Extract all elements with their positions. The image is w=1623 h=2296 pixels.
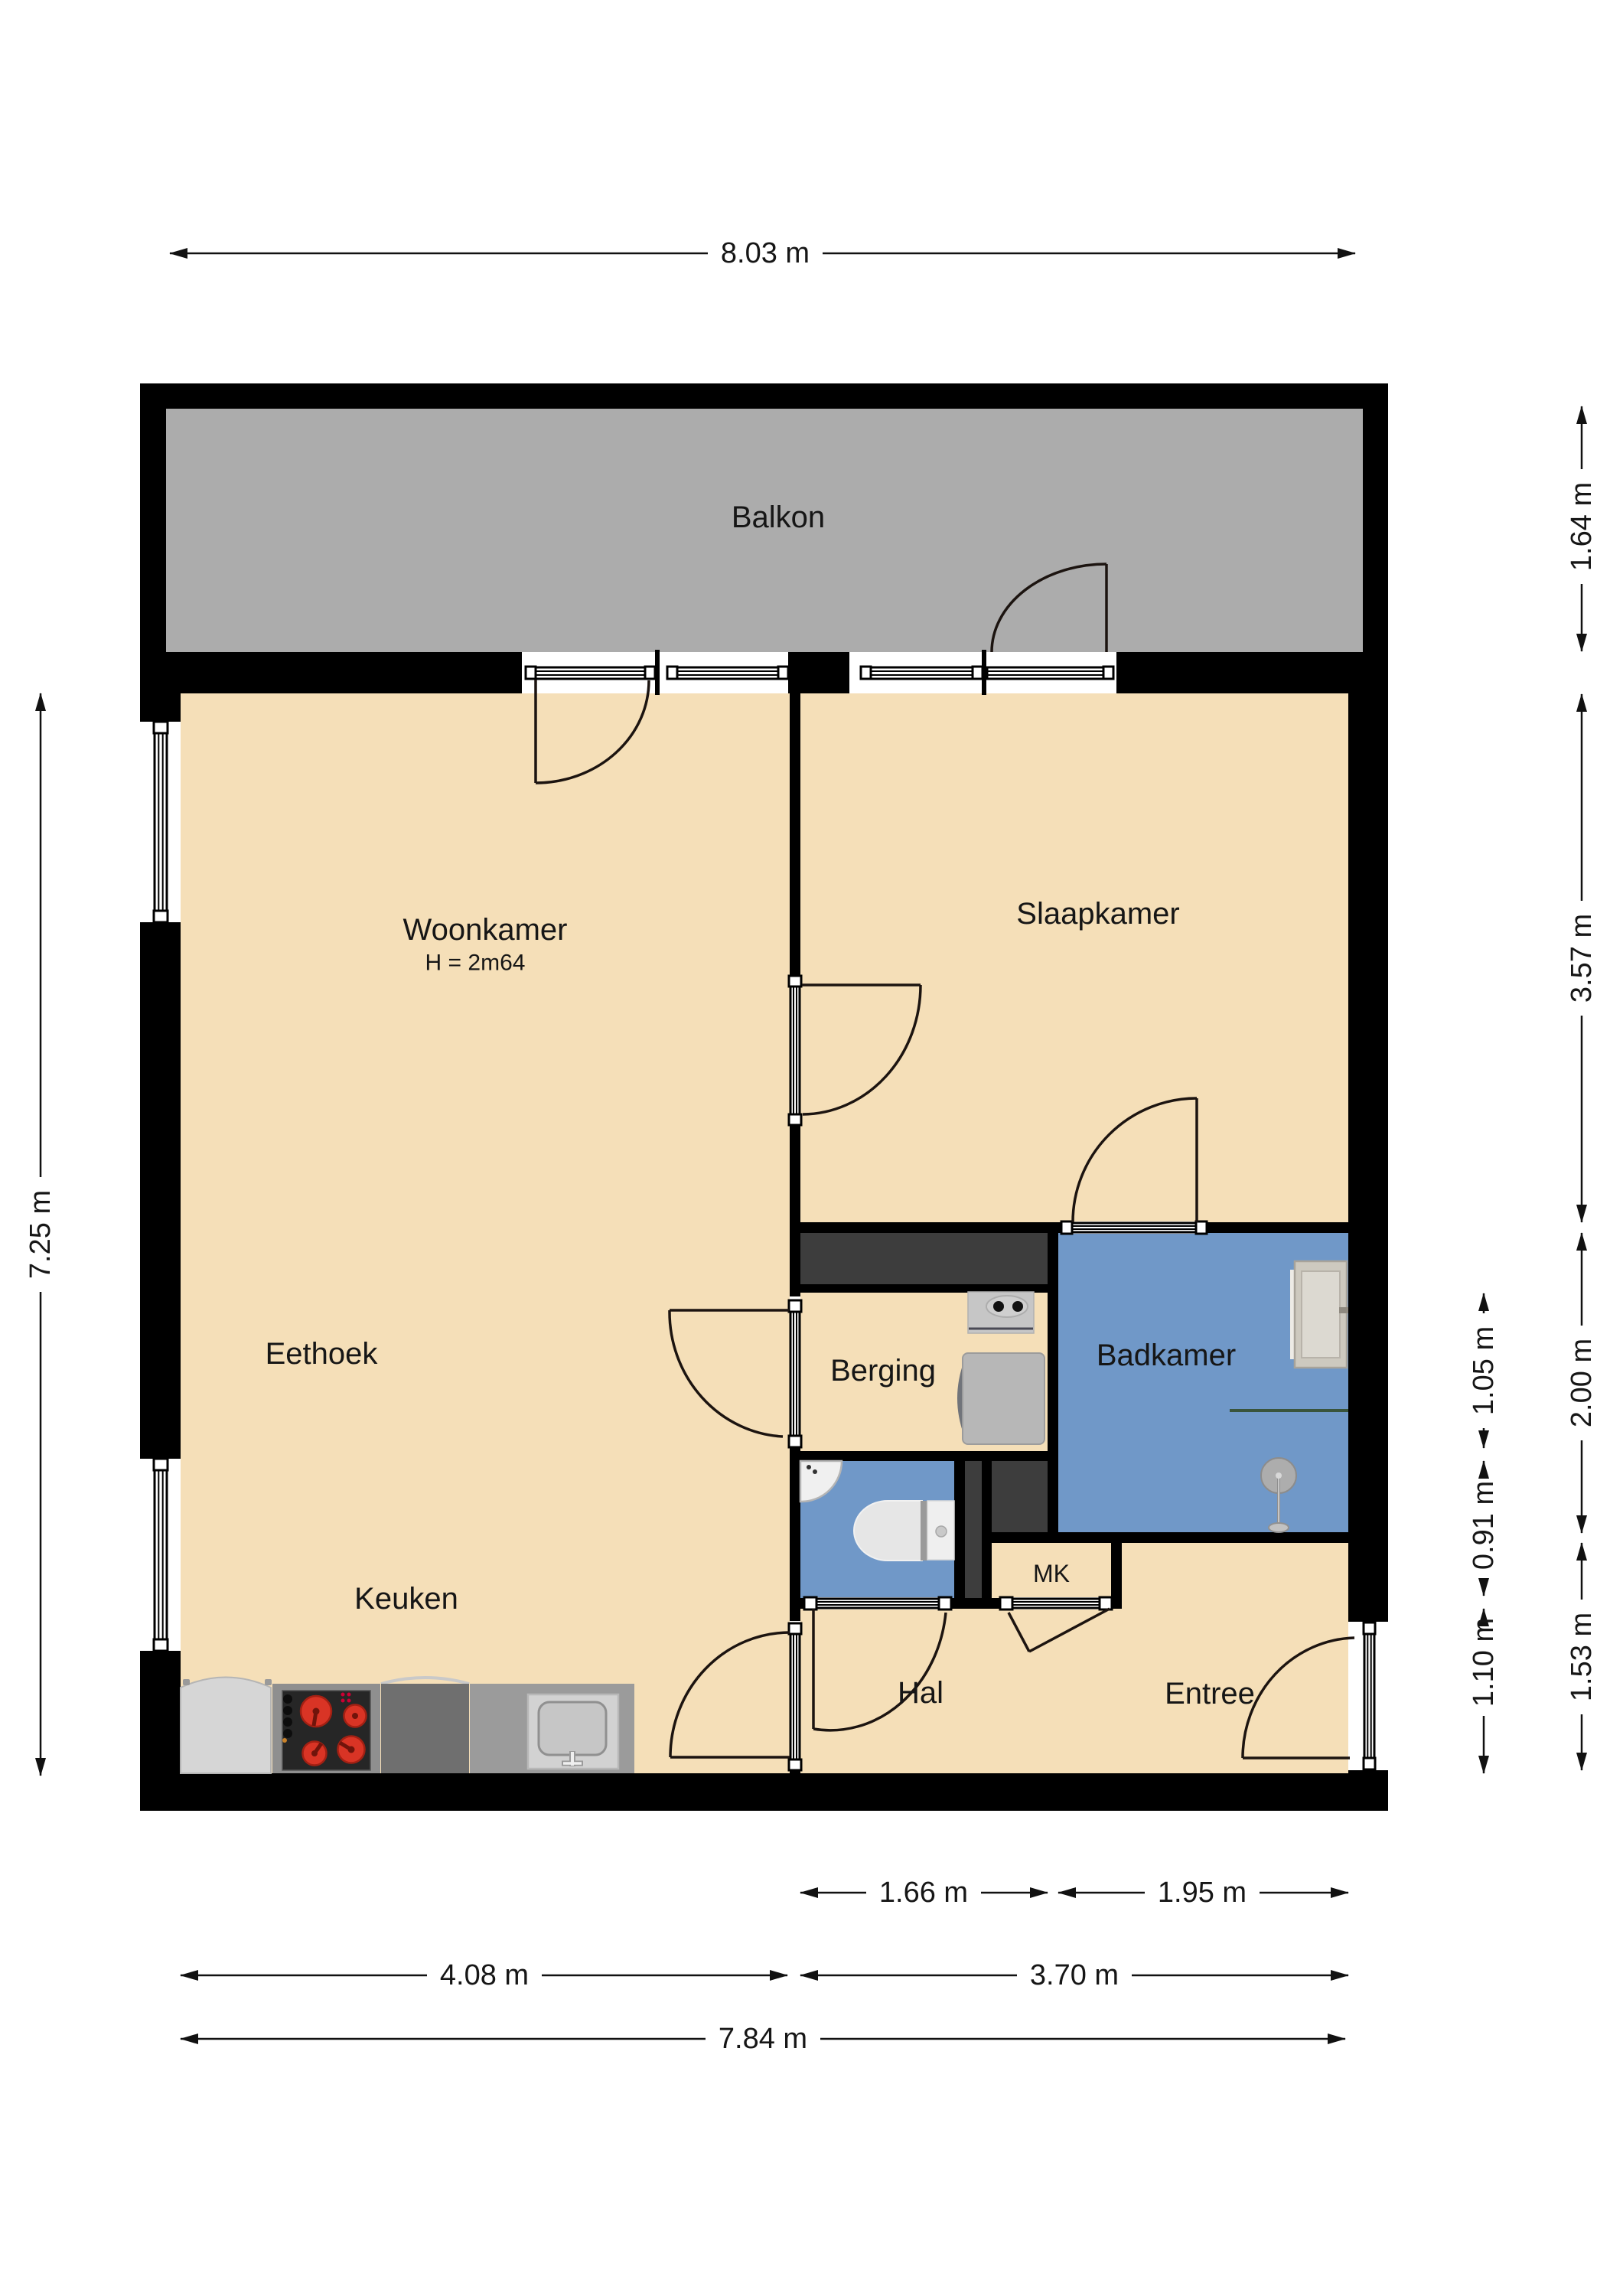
svg-text:MK: MK	[1033, 1560, 1070, 1587]
svg-text:1.95 m: 1.95 m	[1158, 1877, 1247, 1909]
svg-text:Berging: Berging	[830, 1354, 936, 1388]
svg-text:7.84 m: 7.84 m	[719, 2023, 807, 2055]
svg-text:Balkon: Balkon	[732, 501, 825, 534]
svg-text:4.08 m: 4.08 m	[440, 1959, 529, 1991]
svg-text:Slaapkamer: Slaapkamer	[1016, 897, 1179, 931]
svg-text:1.05 m: 1.05 m	[1468, 1326, 1500, 1415]
svg-text:H = 2m64: H = 2m64	[425, 951, 526, 976]
svg-text:7.25 m: 7.25 m	[24, 1190, 57, 1279]
svg-text:2.00 m: 2.00 m	[1566, 1339, 1598, 1427]
svg-text:1.66 m: 1.66 m	[879, 1877, 968, 1909]
svg-text:Eethoek: Eethoek	[266, 1337, 379, 1371]
svg-text:3.70 m: 3.70 m	[1030, 1959, 1119, 1991]
svg-text:Badkamer: Badkamer	[1097, 1339, 1236, 1372]
svg-text:8.03 m: 8.03 m	[721, 237, 810, 269]
svg-text:Woonkamer: Woonkamer	[403, 913, 568, 947]
svg-text:Hal: Hal	[898, 1676, 943, 1710]
svg-text:1.10 m: 1.10 m	[1468, 1618, 1500, 1707]
svg-text:1.53 m: 1.53 m	[1566, 1613, 1598, 1701]
svg-text:0.91 m: 0.91 m	[1468, 1481, 1500, 1570]
svg-text:Entree: Entree	[1165, 1677, 1255, 1711]
svg-text:1.64 m: 1.64 m	[1566, 482, 1598, 571]
svg-text:Keuken: Keuken	[354, 1582, 458, 1616]
svg-text:3.57 m: 3.57 m	[1566, 914, 1598, 1003]
